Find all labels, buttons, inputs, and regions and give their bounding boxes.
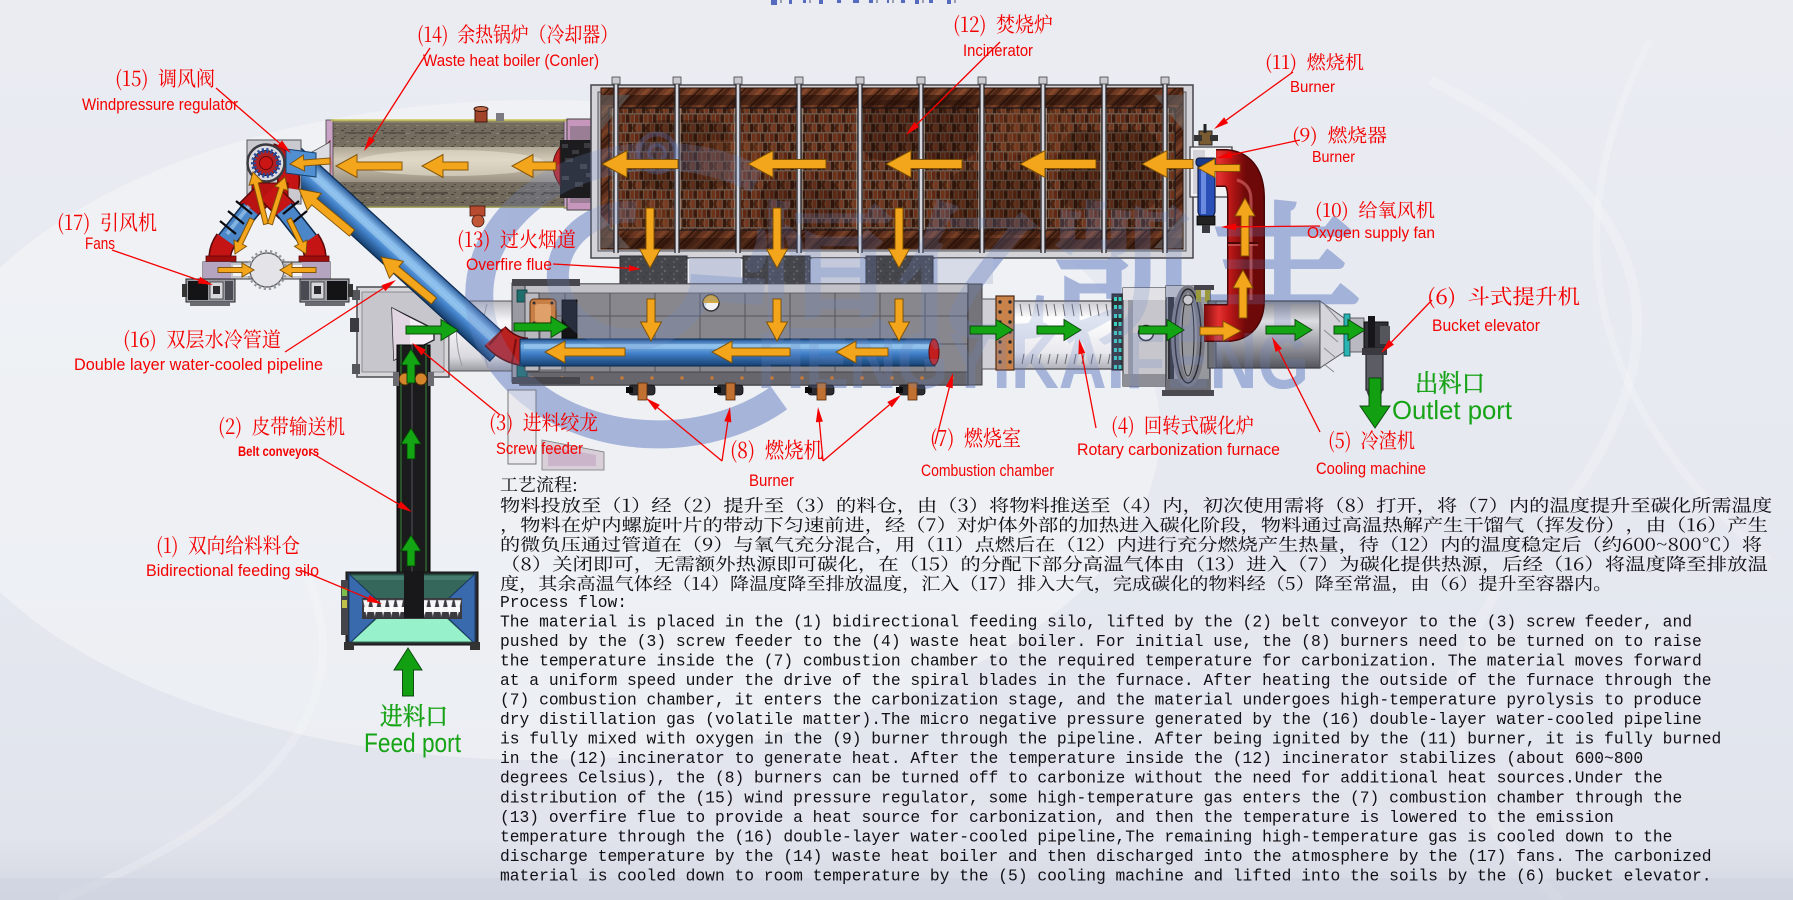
svg-text:Feed port: Feed port [364, 728, 461, 758]
svg-text:at a uniform speed under the d: at a uniform speed under the drive of th… [500, 671, 1712, 690]
svg-text:is fully mixed with oxygen in: is fully mixed with oxygen in the (9) bu… [500, 730, 1721, 749]
svg-text:Oxygen supply fan: Oxygen supply fan [1307, 225, 1435, 242]
svg-text:Belt conveyors: Belt conveyors [238, 443, 319, 459]
svg-text:Cooling machine: Cooling machine [1316, 460, 1426, 478]
svg-text:the temperature inside the (7): the temperature inside the (7) combustio… [500, 651, 1702, 670]
svg-text:Burner: Burner [1290, 79, 1335, 96]
svg-text:material is cooled down to roo: material is cooled down to room temperat… [500, 866, 1712, 885]
svg-text:pushed by the (3) screw feeder: pushed by the (3) screw feeder to the (4… [500, 632, 1702, 651]
svg-text:The material is placed in the: The material is placed in the (1) bidire… [500, 612, 1692, 631]
svg-text:Windpressure regulator: Windpressure regulator [82, 96, 238, 114]
svg-text:Rotary carbonization furnace: Rotary carbonization furnace [1077, 441, 1280, 459]
svg-text:Process flow:: Process flow: [500, 593, 627, 612]
svg-text:dry distillation gas (volatile: dry distillation gas (volatile matter).T… [500, 710, 1702, 729]
svg-text:Incinerator: Incinerator [963, 42, 1033, 60]
svg-text:Bucket elevator: Bucket elevator [1432, 317, 1540, 335]
svg-text:(7) combustion chamber, it ent: (7) combustion chamber, it enters the ca… [500, 691, 1702, 710]
svg-text:distribution of the (15) wind: distribution of the (15) wind pressure r… [500, 788, 1682, 807]
svg-text:in the (12) incinerator to gen: in the (12) incinerator to generate heat… [500, 749, 1643, 768]
svg-text:Overfire flue: Overfire flue [466, 256, 552, 274]
svg-text:Bidirectional feeding silo: Bidirectional feeding silo [146, 562, 319, 580]
svg-text:Combustion chamber: Combustion chamber [921, 462, 1054, 480]
svg-text:Screw feeder: Screw feeder [496, 440, 583, 458]
svg-text:Waste heat boiler (Conler): Waste heat boiler (Conler) [423, 52, 599, 70]
svg-text:Outlet port: Outlet port [1392, 395, 1513, 425]
svg-text:Fans: Fans [85, 235, 115, 253]
svg-text:Double layer water-cooled pipe: Double layer water-cooled pipeline [74, 356, 323, 374]
svg-text:discharge temperature by the (: discharge temperature by the (14) waste … [500, 847, 1712, 866]
svg-text:temperature through the (16) d: temperature through the (16) double-laye… [500, 827, 1672, 846]
svg-text:Burner: Burner [1312, 149, 1355, 166]
svg-text:degrees Celsius), the (8) burn: degrees Celsius), the (8) burners can be… [500, 769, 1663, 788]
svg-text:(13) overfire flue to provide: (13) overfire flue to provide a heat sou… [500, 808, 1614, 827]
svg-text:Burner: Burner [749, 472, 794, 490]
